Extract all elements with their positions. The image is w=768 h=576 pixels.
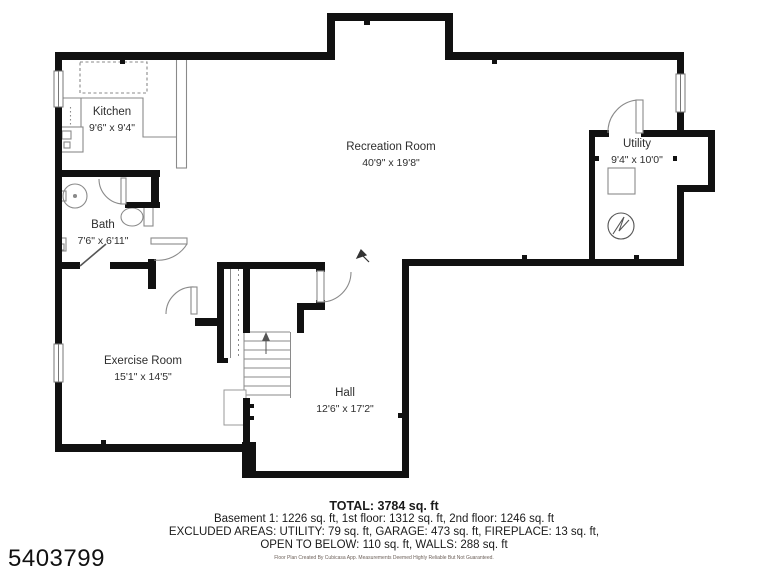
door-vestibule [151, 238, 187, 260]
room-label-exercise-room: Exercise Room 15'1" x 14'5" [104, 355, 182, 383]
entrance-arrow-icon [357, 250, 369, 262]
svg-text:9'4" x 10'0": 9'4" x 10'0" [611, 154, 663, 166]
window [54, 71, 63, 107]
utility-box-icon [608, 168, 635, 194]
listing-id: 5403799 [8, 545, 105, 573]
svg-text:12'6" x 17'2": 12'6" x 17'2" [316, 403, 374, 415]
room-label-bath: Bath 7'6" x 6'11" [78, 219, 129, 247]
room-label-kitchen: Kitchen 9'6" x 9'4" [89, 106, 135, 134]
floor-plan-drawing: Kitchen 9'6" x 9'4" Recreation Room 40'9… [0, 0, 768, 576]
door-bath [80, 244, 106, 266]
door-utility [608, 100, 643, 133]
kitchen-appliance-dashed [80, 62, 147, 93]
excluded-areas-text2: OPEN TO BELOW: 110 sq. ft, WALLS: 288 sq… [0, 539, 768, 552]
door-shower [99, 178, 126, 204]
svg-text:Kitchen: Kitchen [93, 106, 131, 118]
svg-text:Hall: Hall [335, 387, 355, 399]
svg-text:Bath: Bath [91, 219, 115, 231]
svg-text:40'9" x 19'8": 40'9" x 19'8" [362, 157, 420, 169]
walls [55, 13, 715, 478]
room-label-hall: Hall 12'6" x 17'2" [316, 387, 374, 415]
svg-text:7'6" x 6'11": 7'6" x 6'11" [78, 235, 129, 247]
door-exercise-room [166, 287, 197, 314]
total-area-text: TOTAL: 3784 sq. ft [0, 499, 768, 513]
window [54, 344, 63, 382]
room-label-recreation-room: Recreation Room 40'9" x 19'8" [346, 141, 435, 169]
doors [80, 100, 643, 314]
svg-text:9'6" x 9'4": 9'6" x 9'4" [89, 122, 135, 134]
room-label-utility: Utility 9'4" x 10'0" [611, 138, 663, 166]
under-stairs-closet [224, 390, 246, 425]
svg-text:15'1" x 14'5": 15'1" x 14'5" [114, 371, 172, 383]
floor-plan-page: Kitchen 9'6" x 9'4" Recreation Room 40'9… [0, 0, 768, 576]
staircase [231, 269, 291, 398]
utility-fixtures [608, 168, 635, 239]
excluded-areas-text: EXCLUDED AREAS: UTILITY: 79 sq. ft, GARA… [0, 526, 768, 539]
disclaimer-text: Floor Plan Created By Cubicasa App. Meas… [0, 555, 768, 561]
svg-text:Recreation Room: Recreation Room [346, 141, 435, 153]
floor-areas-text: Basement 1: 1226 sq. ft, 1st floor: 1312… [0, 513, 768, 526]
svg-text:Utility: Utility [623, 138, 651, 150]
stairs-up-arrow-icon [262, 332, 270, 354]
svg-text:Exercise Room: Exercise Room [104, 355, 182, 367]
toilet-icon [144, 207, 153, 226]
door-hall [317, 271, 351, 302]
window [676, 74, 685, 112]
area-summary: TOTAL: 3784 sq. ft Basement 1: 1226 sq. … [0, 499, 768, 561]
